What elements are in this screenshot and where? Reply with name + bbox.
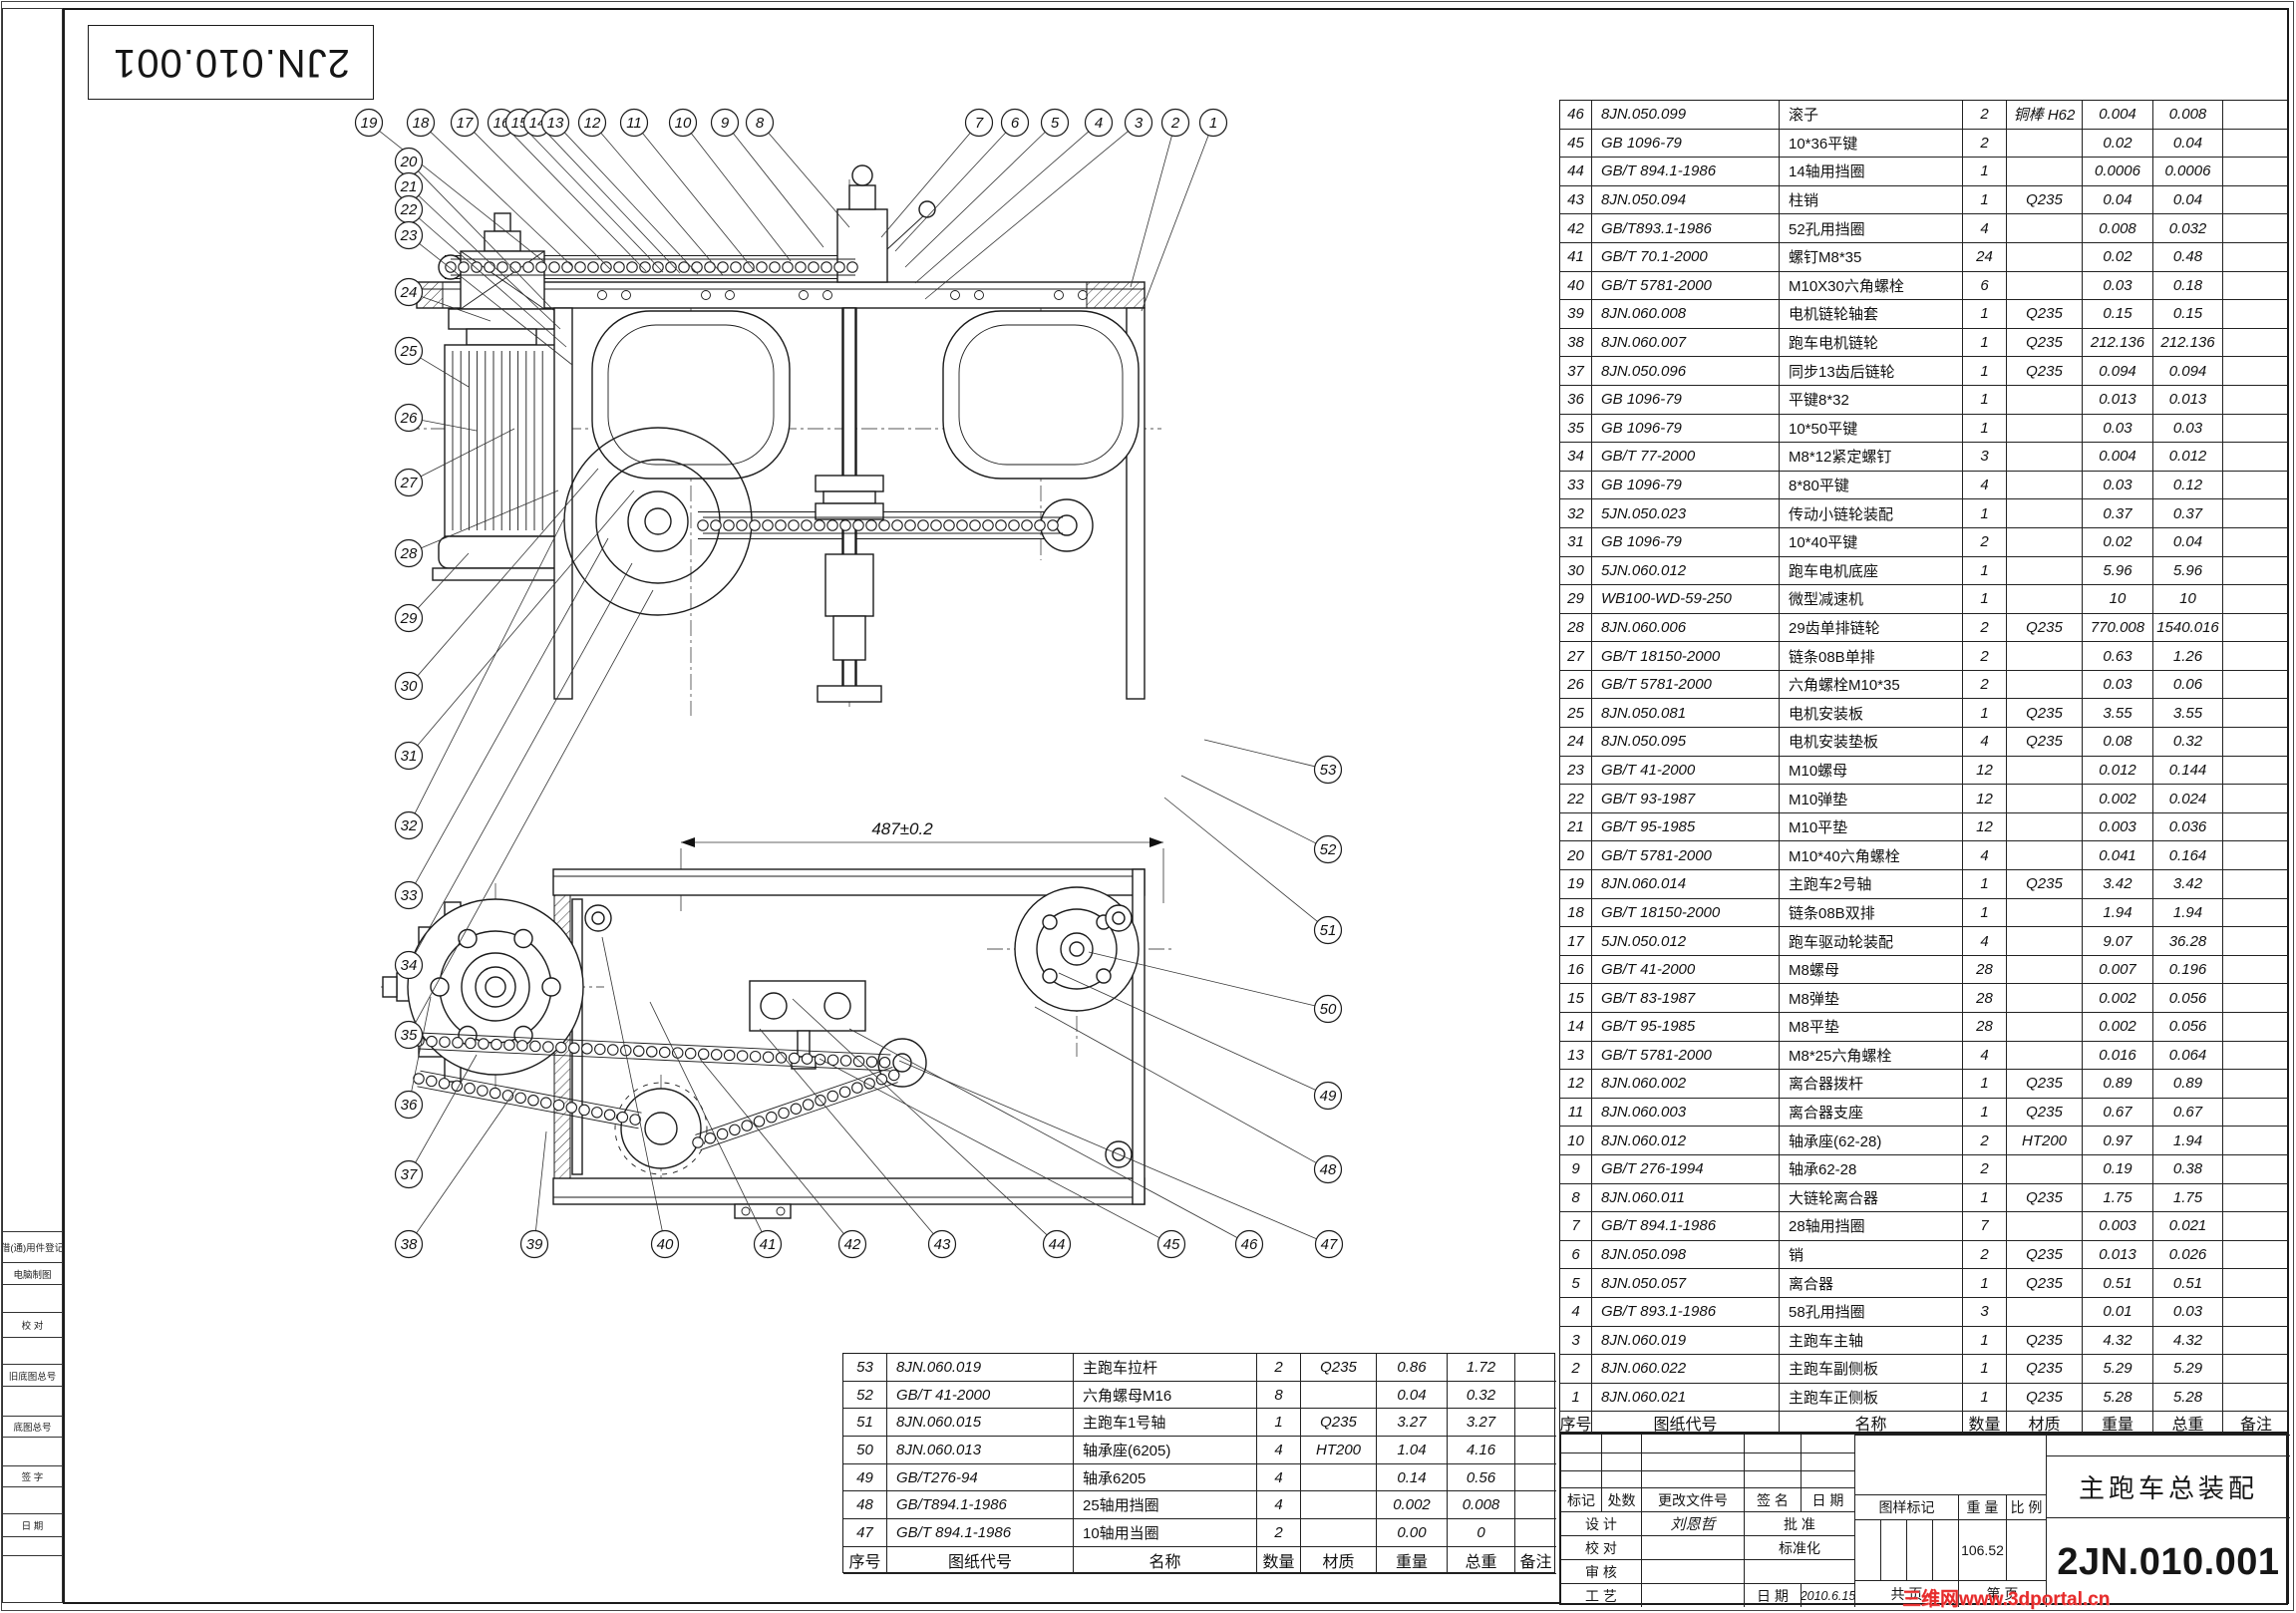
bom-cell: 离合器支座 (1780, 1099, 1963, 1128)
bom-cell (2007, 243, 2083, 272)
balloon-48: 48 (1035, 1007, 1342, 1183)
bom-cell: 22 (1560, 785, 1592, 813)
tb-audit: 审 核 (1561, 1559, 1641, 1583)
bom-cell: 8JN.050.081 (1592, 699, 1780, 728)
margin-cell (3, 1537, 62, 1556)
bom-cell: 5 (1560, 1269, 1592, 1298)
tb-craft: 工 艺 (1561, 1583, 1641, 1607)
bom-cell: 0.15 (2153, 300, 2223, 329)
svg-text:49: 49 (1320, 1088, 1337, 1105)
bom-cell: 1 (1963, 585, 2007, 614)
svg-text:24: 24 (400, 284, 418, 301)
balloon-51: 51 (1164, 798, 1342, 944)
bom-cell (1301, 1382, 1377, 1410)
bom-cell: 1 (1963, 1184, 2007, 1213)
bom-cell: 5JN.050.023 (1592, 499, 1780, 528)
svg-text:51: 51 (1320, 922, 1337, 939)
bom-cell: 大链轮离合器 (1780, 1184, 1963, 1213)
svg-text:10: 10 (675, 115, 692, 132)
bom-cell: GB 1096-79 (1592, 415, 1780, 444)
bom-cell: 主跑车拉杆 (1074, 1354, 1257, 1382)
bom-cell: 8JN.050.095 (1592, 728, 1780, 757)
bom-cell: 1 (1963, 699, 2007, 728)
bom-cell: GB/T 93-1987 (1592, 785, 1780, 813)
bom-cell (2223, 899, 2289, 928)
balloon-39: 39 (521, 1131, 548, 1258)
bom-cell: 主跑车正侧板 (1780, 1384, 1963, 1413)
svg-text:31: 31 (401, 748, 418, 765)
bom-cell (2007, 642, 2083, 671)
svg-text:12: 12 (584, 115, 601, 132)
bom-cell (1301, 1464, 1377, 1492)
tb-weight-label: 重 量 (1958, 1494, 2006, 1519)
bom-cell (2223, 1212, 2289, 1241)
svg-text:26: 26 (400, 410, 418, 427)
bom-cell: HT200 (2007, 1127, 2083, 1155)
bom-cell: 0.63 (2083, 642, 2153, 671)
bom-cell: 5.29 (2083, 1355, 2153, 1384)
bom-cell: Q235 (2007, 1384, 2083, 1413)
bom-cell: 轴承6205 (1074, 1464, 1257, 1492)
bom-cell: 0.0006 (2153, 158, 2223, 186)
bom-cell: 0.19 (2083, 1155, 2153, 1184)
bom-cell: 11 (1560, 1099, 1592, 1128)
bom-cell: 23 (1560, 757, 1592, 786)
svg-text:11: 11 (626, 115, 642, 132)
svg-text:22: 22 (400, 201, 418, 218)
bom-cell: M8弹垫 (1780, 984, 1963, 1013)
bom-cell: 2 (1963, 1155, 2007, 1184)
svg-text:42: 42 (844, 1236, 861, 1253)
bom-cell: Q235 (2007, 1327, 2083, 1356)
bom-cell: 0.97 (2083, 1127, 2153, 1155)
bom-cell (2223, 130, 2289, 159)
bom-cell (2007, 671, 2083, 700)
bom-cell: 0.14 (1377, 1464, 1448, 1492)
bom-cell: Q235 (2007, 1099, 2083, 1128)
bom-cell: 0.37 (2083, 499, 2153, 528)
bom-cell: 4 (1257, 1437, 1301, 1464)
bom-cell: 主跑车1号轴 (1074, 1409, 1257, 1437)
bom-cell: M8*25六角螺栓 (1780, 1042, 1963, 1071)
bom-cell: 51 (843, 1409, 887, 1437)
bom-cell: 0.04 (1377, 1382, 1448, 1410)
bom-cell (2007, 158, 2083, 186)
bom-cell: GB/T 18150-2000 (1592, 899, 1780, 928)
bom-cell: 0.15 (2083, 300, 2153, 329)
bom-cell: Q235 (2007, 300, 2083, 329)
bom-cell: 0.02 (2083, 528, 2153, 557)
bom-cell: 10轴用当圈 (1074, 1519, 1257, 1547)
bom-cell: 传动小链轮装配 (1780, 499, 1963, 528)
svg-text:47: 47 (1321, 1236, 1338, 1253)
bom-cell: 1 (1963, 357, 2007, 386)
bom-cell (2223, 1298, 2289, 1327)
bom-cell: 4 (1560, 1298, 1592, 1327)
tb-change-doc: 更改文件号 (1641, 1487, 1744, 1511)
bom-cell: 1.75 (2083, 1184, 2153, 1213)
margin-cell (3, 1438, 62, 1466)
svg-text:2: 2 (1170, 115, 1180, 132)
bom-cell: 8JN.060.011 (1592, 1184, 1780, 1213)
bom-cell (2223, 1099, 2289, 1128)
bom-cell: 链条08B单排 (1780, 642, 1963, 671)
bom-cell: 0.013 (2083, 1241, 2153, 1270)
bom-cell: 40 (1560, 272, 1592, 301)
bom-cell: 4.32 (2153, 1327, 2223, 1356)
bom-cell: 4.32 (2083, 1327, 2153, 1356)
bom-cell: 5.96 (2153, 557, 2223, 586)
bom-cell: 24 (1560, 728, 1592, 757)
bom-cell: 0.004 (2083, 101, 2153, 130)
bom-cell: 36 (1560, 386, 1592, 415)
svg-text:30: 30 (401, 678, 418, 695)
bom-cell (2223, 472, 2289, 500)
bom-cell: 3.42 (2153, 870, 2223, 899)
bom-cell: 0.064 (2153, 1042, 2223, 1071)
bom-cell: 离合器 (1780, 1269, 1963, 1298)
bom-cell: 0.008 (2153, 101, 2223, 130)
tb-mark: 标记 (1561, 1487, 1601, 1511)
bom-cell: 0.32 (2153, 728, 2223, 757)
bom-cell: 9.07 (2083, 927, 2153, 956)
balloon-52: 52 (1181, 776, 1342, 863)
margin-label: 旧底图总号 (3, 1365, 62, 1387)
bom-cell (2223, 642, 2289, 671)
tb-scale-label: 比 例 (2006, 1494, 2046, 1519)
bom-cell: 14轴用挡圈 (1780, 158, 1963, 186)
bom-cell: Q235 (2007, 728, 2083, 757)
bom-cell: M10X30六角螺栓 (1780, 272, 1963, 301)
bom-cell: 8 (1560, 1184, 1592, 1213)
svg-text:44: 44 (1049, 1236, 1066, 1253)
bom-cell (2007, 472, 2083, 500)
bom-cell: 8JN.060.015 (887, 1409, 1074, 1437)
bom-cell (2223, 1070, 2289, 1099)
bom-cell: 1 (1963, 1327, 2007, 1356)
bom-cell: 4.16 (1448, 1437, 1515, 1464)
bom-table-right: 468JN.050.099滚子2铜棒 H620.0040.00845GB 109… (1559, 100, 2288, 1433)
svg-text:53: 53 (1320, 762, 1337, 779)
bom-cell: M8平垫 (1780, 1013, 1963, 1042)
bom-header-cell: 重量 (2083, 1412, 2153, 1433)
bom-cell: 41 (1560, 243, 1592, 272)
bom-cell: 离合器拨杆 (1780, 1070, 1963, 1099)
bom-cell: 44 (1560, 158, 1592, 186)
bom-cell: GB/T 77-2000 (1592, 443, 1780, 472)
tb-qty: 处数 (1601, 1487, 1641, 1511)
top-left-code-box: 2JN.010.001 (88, 25, 374, 100)
bom-cell: 8JN.060.006 (1592, 614, 1780, 643)
bom-cell: 19 (1560, 870, 1592, 899)
bom-cell: 0.06 (2153, 671, 2223, 700)
svg-text:46: 46 (1241, 1236, 1258, 1253)
bom-cell: 主跑车主轴 (1780, 1327, 1963, 1356)
margin-cell (3, 1338, 62, 1365)
margin-label: 底图总号 (3, 1417, 62, 1438)
bom-cell: 0.04 (2153, 130, 2223, 159)
bom-cell: 0.056 (2153, 984, 2223, 1013)
bom-cell (2007, 272, 2083, 301)
svg-text:3: 3 (1135, 115, 1144, 132)
bom-cell: 2 (1963, 671, 2007, 700)
bom-cell (2007, 415, 2083, 444)
bom-cell: 1 (1963, 158, 2007, 186)
bom-cell (2007, 1155, 2083, 1184)
bom-cell (2223, 1155, 2289, 1184)
bom-cell: Q235 (2007, 1184, 2083, 1213)
bom-cell (1515, 1354, 1556, 1382)
bom-cell: 1.26 (2153, 642, 2223, 671)
bom-cell: 螺钉M8*35 (1780, 243, 1963, 272)
bom-cell: 柱销 (1780, 186, 1963, 215)
bom-cell: 3 (1963, 443, 2007, 472)
balloon-3: 3 (925, 110, 1152, 300)
bom-cell: 18 (1560, 899, 1592, 928)
bom-cell: 4 (1963, 1042, 2007, 1071)
bom-cell (1515, 1382, 1556, 1410)
bom-cell: 0 (1448, 1519, 1515, 1547)
svg-text:52: 52 (1320, 841, 1337, 858)
bom-cell (2223, 158, 2289, 186)
bom-cell (2223, 357, 2289, 386)
bom-cell: 0.012 (2153, 443, 2223, 472)
svg-text:6: 6 (1011, 115, 1020, 132)
svg-text:5: 5 (1051, 115, 1060, 132)
bom-cell: GB/T 894.1-1986 (887, 1519, 1074, 1547)
bom-cell: 10*36平键 (1780, 130, 1963, 159)
bom-cell: M10*40六角螺栓 (1780, 841, 1963, 870)
drawing-sheet: 487±0.2 (0, 0, 2296, 1613)
bom-cell: M8*12紧定螺钉 (1780, 443, 1963, 472)
balloon-7: 7 (881, 110, 993, 238)
bom-cell (1301, 1491, 1377, 1519)
bom-cell: 0.03 (2083, 272, 2153, 301)
bom-cell: 12 (1963, 757, 2007, 786)
bom-cell (2007, 984, 2083, 1013)
bom-cell: GB/T276-94 (887, 1464, 1074, 1492)
bom-cell: GB/T893.1-1986 (1592, 214, 1780, 243)
bom-cell: 8JN.050.098 (1592, 1241, 1780, 1270)
bom-header-cell: 材质 (1301, 1547, 1377, 1574)
bom-cell: 0.002 (2083, 984, 2153, 1013)
bom-cell: 1 (1963, 386, 2007, 415)
bom-cell: 5.28 (2083, 1384, 2153, 1413)
bom-cell: 10 (1560, 1127, 1592, 1155)
bom-cell (2007, 1212, 2083, 1241)
bom-cell: 2 (1257, 1354, 1301, 1382)
bom-cell: 4 (1963, 927, 2007, 956)
bom-cell: Q235 (2007, 186, 2083, 215)
bom-cell: 25轴用挡圈 (1074, 1491, 1257, 1519)
bom-cell: 0.02 (2083, 243, 2153, 272)
bom-cell: 16 (1560, 956, 1592, 985)
bom-cell: Q235 (2007, 1241, 2083, 1270)
bom-cell: 1 (1963, 329, 2007, 358)
bom-cell: 14 (1560, 1013, 1592, 1042)
bom-cell (2007, 443, 2083, 472)
bom-cell: 58孔用挡圈 (1780, 1298, 1963, 1327)
bom-cell: 0.003 (2083, 1212, 2153, 1241)
bom-cell: 20 (1560, 841, 1592, 870)
margin-label: 借(通)用件登记 (3, 1232, 62, 1263)
bom-cell: GB/T 83-1987 (1592, 984, 1780, 1013)
bom-cell: 1.75 (2153, 1184, 2223, 1213)
bom-cell: 43 (1560, 186, 1592, 215)
bom-cell: 0.48 (2153, 243, 2223, 272)
bom-cell: 25 (1560, 699, 1592, 728)
bom-cell (2007, 1298, 2083, 1327)
tb-approve: 批 准 (1744, 1511, 1854, 1535)
bom-cell: 47 (843, 1519, 887, 1547)
bom-cell: 0.37 (2153, 499, 2223, 528)
tb-designer-signature: 刘恩哲 (1641, 1511, 1744, 1535)
bom-cell: 0.67 (2083, 1099, 2153, 1128)
bom-cell: 5.28 (2153, 1384, 2223, 1413)
bom-cell (2223, 956, 2289, 985)
bom-cell: 1.94 (2083, 899, 2153, 928)
bom-cell (2007, 785, 2083, 813)
bom-cell: 3.42 (2083, 870, 2153, 899)
bom-cell (2223, 813, 2289, 842)
bom-cell: M10弹垫 (1780, 785, 1963, 813)
bom-cell (2007, 1042, 2083, 1071)
bom-cell (2223, 272, 2289, 301)
bom-cell (2007, 1013, 2083, 1042)
bom-cell: 0.12 (2153, 472, 2223, 500)
tb-check: 校 对 (1561, 1535, 1641, 1559)
bom-cell: 0.04 (2083, 186, 2153, 215)
bom-cell: 5JN.050.012 (1592, 927, 1780, 956)
bom-cell: 49 (843, 1464, 887, 1492)
bom-cell: 39 (1560, 300, 1592, 329)
bom-cell: 0.004 (2083, 443, 2153, 472)
bom-cell: 0.38 (2153, 1155, 2223, 1184)
bom-cell: 7 (1963, 1212, 2007, 1241)
bom-cell: 33 (1560, 472, 1592, 500)
bom-cell: 37 (1560, 357, 1592, 386)
bom-cell: 0.86 (1377, 1354, 1448, 1382)
margin-cell (3, 1556, 62, 1604)
bom-cell: 0.51 (2083, 1269, 2153, 1298)
bom-cell: 2 (1963, 642, 2007, 671)
bom-cell (2007, 214, 2083, 243)
bom-cell: 0.00 (1377, 1519, 1448, 1547)
svg-text:35: 35 (401, 1027, 418, 1044)
bom-cell: 0.02 (2083, 130, 2153, 159)
svg-text:7: 7 (975, 115, 984, 132)
bom-cell: 2 (1963, 1241, 2007, 1270)
bom-cell: Q235 (2007, 1269, 2083, 1298)
bom-cell: 0.036 (2153, 813, 2223, 842)
bom-cell: 0.18 (2153, 272, 2223, 301)
svg-text:9: 9 (721, 115, 730, 132)
svg-text:50: 50 (1320, 1001, 1337, 1018)
bom-cell (2223, 1042, 2289, 1071)
bom-cell: 六角螺栓M10*35 (1780, 671, 1963, 700)
bom-cell: 0.016 (2083, 1042, 2153, 1071)
bom-cell: 3 (1560, 1327, 1592, 1356)
bom-cell: 27 (1560, 642, 1592, 671)
tb-sign: 签 名 (1744, 1487, 1801, 1511)
bom-cell: 0.67 (2153, 1099, 2223, 1128)
bom-cell: 0.013 (2153, 386, 2223, 415)
bom-cell: 主跑车2号轴 (1780, 870, 1963, 899)
bom-cell: 8JN.060.008 (1592, 300, 1780, 329)
tb-date-h: 日 期 (1801, 1487, 1854, 1511)
bom-cell: 15 (1560, 984, 1592, 1013)
bom-cell: 4 (1963, 728, 2007, 757)
bom-cell (1515, 1409, 1556, 1437)
bom-cell: Q235 (2007, 357, 2083, 386)
bom-cell: 0.008 (2083, 214, 2153, 243)
bom-cell: 0.89 (2083, 1070, 2153, 1099)
bom-cell: 10*40平键 (1780, 528, 1963, 557)
bom-cell: 1.72 (1448, 1354, 1515, 1382)
bom-cell: 8JN.060.019 (1592, 1327, 1780, 1356)
margin-label: 签 字 (3, 1466, 62, 1487)
bom-cell: 1 (1963, 899, 2007, 928)
bom-cell: 8JN.060.007 (1592, 329, 1780, 358)
bom-cell: 31 (1560, 528, 1592, 557)
bom-cell: 0.056 (2153, 1013, 2223, 1042)
bom-cell: GB/T894.1-1986 (887, 1491, 1074, 1519)
bom-cell (2223, 300, 2289, 329)
bom-cell: 212.136 (2083, 329, 2153, 358)
bom-cell (2223, 841, 2289, 870)
bom-cell: 1 (1963, 1099, 2007, 1128)
balloon-33: 33 (396, 538, 609, 909)
bom-cell: 52 (843, 1382, 887, 1410)
bom-cell: 滚子 (1780, 101, 1963, 130)
bom-header-cell: 数量 (1257, 1547, 1301, 1574)
bom-cell: GB/T 5781-2000 (1592, 1042, 1780, 1071)
bom-cell: 2 (1963, 1127, 2007, 1155)
bom-cell: 轴承62-28 (1780, 1155, 1963, 1184)
bom-cell: 1 (1963, 1070, 2007, 1099)
svg-text:37: 37 (401, 1166, 418, 1183)
svg-text:45: 45 (1163, 1236, 1180, 1253)
bom-cell: 0.56 (1448, 1464, 1515, 1492)
svg-text:33: 33 (401, 887, 418, 904)
bom-header-cell: 总重 (1448, 1547, 1515, 1574)
bom-cell: 36.28 (2153, 927, 2223, 956)
bom-header-cell: 总重 (2153, 1412, 2223, 1433)
bom-cell: 0.003 (2083, 813, 2153, 842)
bom-cell: 4 (1963, 841, 2007, 870)
bom-cell: 10*50平键 (1780, 415, 1963, 444)
tb-date-value: 2010.6.15 (1801, 1583, 1854, 1607)
bom-cell: 2 (1963, 130, 2007, 159)
bom-cell: 3.27 (1448, 1409, 1515, 1437)
svg-text:1: 1 (1209, 115, 1217, 132)
bom-cell (2223, 214, 2289, 243)
bom-cell: Q235 (2007, 870, 2083, 899)
bom-cell (2223, 186, 2289, 215)
bom-cell: 1 (1560, 1384, 1592, 1413)
bom-cell (1515, 1464, 1556, 1492)
bom-header-cell: 名称 (1780, 1412, 1963, 1433)
bom-cell: 8*80平键 (1780, 472, 1963, 500)
bom-cell (2007, 757, 2083, 786)
bom-cell: GB/T 70.1-2000 (1592, 243, 1780, 272)
bom-cell (2223, 1327, 2289, 1356)
bom-cell (2223, 1013, 2289, 1042)
bom-cell: 28 (1963, 956, 2007, 985)
bom-cell: 8JN.060.002 (1592, 1070, 1780, 1099)
bom-cell: 53 (843, 1354, 887, 1382)
balloon-53: 53 (1204, 740, 1342, 784)
